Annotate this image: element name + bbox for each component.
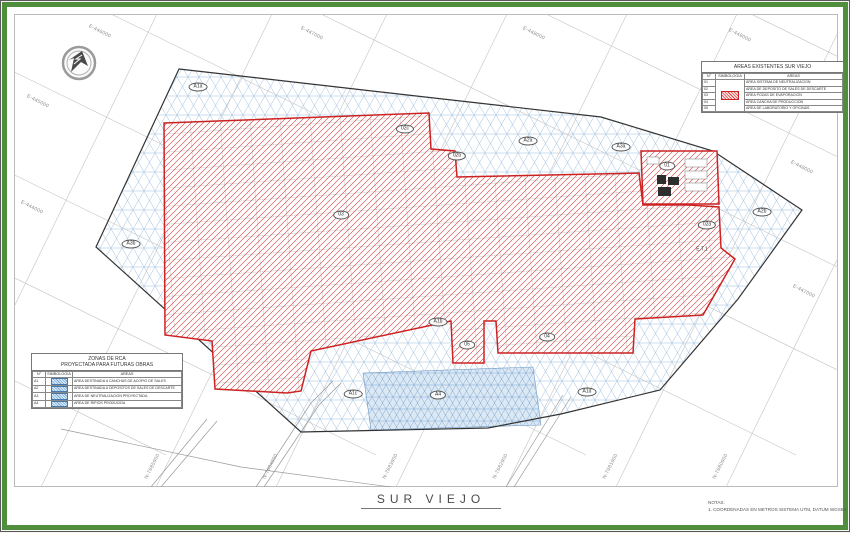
area-label-02c: 02c — [396, 125, 414, 134]
plant-building — [668, 177, 679, 185]
blue-hatch-swatch — [51, 378, 68, 385]
plant-structure — [685, 183, 707, 191]
area-label-a3a: A3a — [612, 143, 631, 152]
legend-projected-title: ZONAS DE RCA PROYECTADA PARA FUTURAS OBR… — [32, 354, 182, 371]
legend-projected-zones: ZONAS DE RCA PROYECTADA PARA FUTURAS OBR… — [31, 353, 183, 409]
area-label-a2a: A2a — [519, 137, 538, 146]
area-label-a1b: A1b — [429, 318, 448, 327]
zone-a4-dense-blue — [363, 367, 541, 430]
area-label-a3b: A3b — [122, 240, 141, 249]
legend-row-area: AREA DE NEUTRALIZACION PROYECTADA — [73, 393, 182, 401]
legend-blue-swatch-cell — [46, 393, 73, 401]
legend-row-area: AREA DESTINADA A DEPOSITOS DE SALES DE D… — [73, 385, 182, 393]
plant-building — [657, 175, 666, 184]
notes-heading: NOTAS: — [708, 499, 847, 506]
area-label-a1a: A1a — [189, 83, 208, 92]
red-hatch-swatch — [721, 91, 739, 100]
legend-existing-title: AREAS EXISTENTES SUR VIEJO — [702, 62, 843, 73]
legend-row-n: 05 — [703, 106, 716, 112]
legend-blue-swatch-cell — [46, 400, 73, 408]
zone-red-plant-block — [641, 151, 719, 204]
col-header-simb: SIMBOLOGIA — [46, 372, 73, 378]
legend-row-area: AREA DE RIPIOS PRODUCIDA — [73, 400, 182, 408]
area-label-03: 03 — [333, 211, 349, 220]
area-label-et1: E.T.1 — [696, 248, 707, 253]
drawing-title-text: SUR VIEJO — [361, 492, 501, 509]
notes-item: 1. COORDENADAS EN METROS SISTEMA UTM, DA… — [708, 506, 847, 513]
blue-hatch-swatch — [51, 401, 68, 408]
col-header-simb: SIMBOLOGIA — [716, 74, 745, 80]
legend-row-n: A4 — [33, 400, 46, 408]
legend-projected-title-line2: PROYECTADA PARA FUTURAS OBRAS — [33, 362, 181, 368]
legend-red-swatch-cell — [716, 80, 745, 112]
legend-row-area: AREA DESTINADA A CANCHAS DE ACOPIO DE SA… — [73, 378, 182, 386]
area-label-01: 01 — [659, 162, 675, 171]
legend-row-n: A1 — [33, 378, 46, 386]
plant-structure — [685, 159, 707, 167]
area-label-a1c: A1c — [344, 390, 363, 399]
plant-structure — [647, 157, 659, 164]
blue-hatch-swatch — [51, 386, 68, 393]
legend-row-n: A2 — [33, 385, 46, 393]
plant-structure — [685, 171, 707, 179]
legend-blue-swatch-cell — [46, 385, 73, 393]
blue-hatch-swatch — [51, 393, 68, 400]
area-label-04: 04 — [539, 333, 555, 342]
legend-blue-swatch-cell — [46, 378, 73, 386]
legend-row-n: A3 — [33, 393, 46, 401]
area-label-05: 05 — [459, 341, 475, 350]
plant-building — [658, 187, 671, 196]
drawing-sheet: { "title": "SUR VIEJO", "notes": { "head… — [0, 0, 850, 532]
legend-existing-areas: AREAS EXISTENTES SUR VIEJO N° SIMBOLOGIA… — [701, 61, 844, 113]
drawing-title: SUR VIEJO — [331, 490, 531, 509]
area-label-a1d: A1d — [578, 388, 597, 397]
area-label-a4: A4 — [430, 391, 446, 400]
legend-row-area: AREA DE LABORATORIO Y OFICINAS — [745, 106, 843, 112]
area-label-a2b: A2b — [753, 208, 772, 217]
notes-block: NOTAS: 1. COORDENADAS EN METROS SISTEMA … — [708, 499, 847, 513]
north-arrow-icon — [63, 47, 95, 79]
